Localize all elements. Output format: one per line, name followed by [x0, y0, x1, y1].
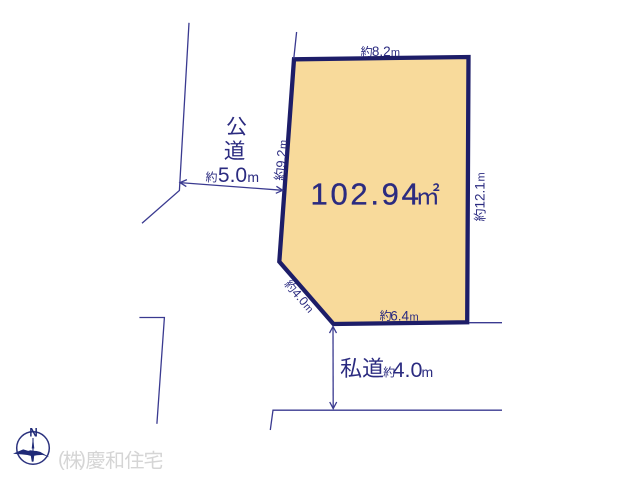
- svg-text:102.94: 102.94: [311, 177, 422, 212]
- svg-text:(: (: [58, 449, 65, 471]
- svg-text:m: m: [277, 140, 290, 150]
- svg-text:9.2: 9.2: [273, 149, 289, 168]
- svg-text:8.2: 8.2: [372, 44, 391, 59]
- svg-text:4.0: 4.0: [393, 358, 423, 382]
- svg-text:m: m: [247, 169, 259, 185]
- svg-text:5.0: 5.0: [218, 164, 247, 187]
- svg-text:12.1: 12.1: [473, 182, 488, 208]
- svg-text:m: m: [391, 47, 400, 59]
- svg-text:): ): [79, 449, 86, 471]
- svg-text:N: N: [29, 428, 37, 440]
- svg-text:6.4: 6.4: [390, 308, 409, 323]
- svg-text:m: m: [422, 364, 434, 380]
- svg-text:m: m: [476, 172, 488, 181]
- svg-text:m: m: [410, 311, 419, 323]
